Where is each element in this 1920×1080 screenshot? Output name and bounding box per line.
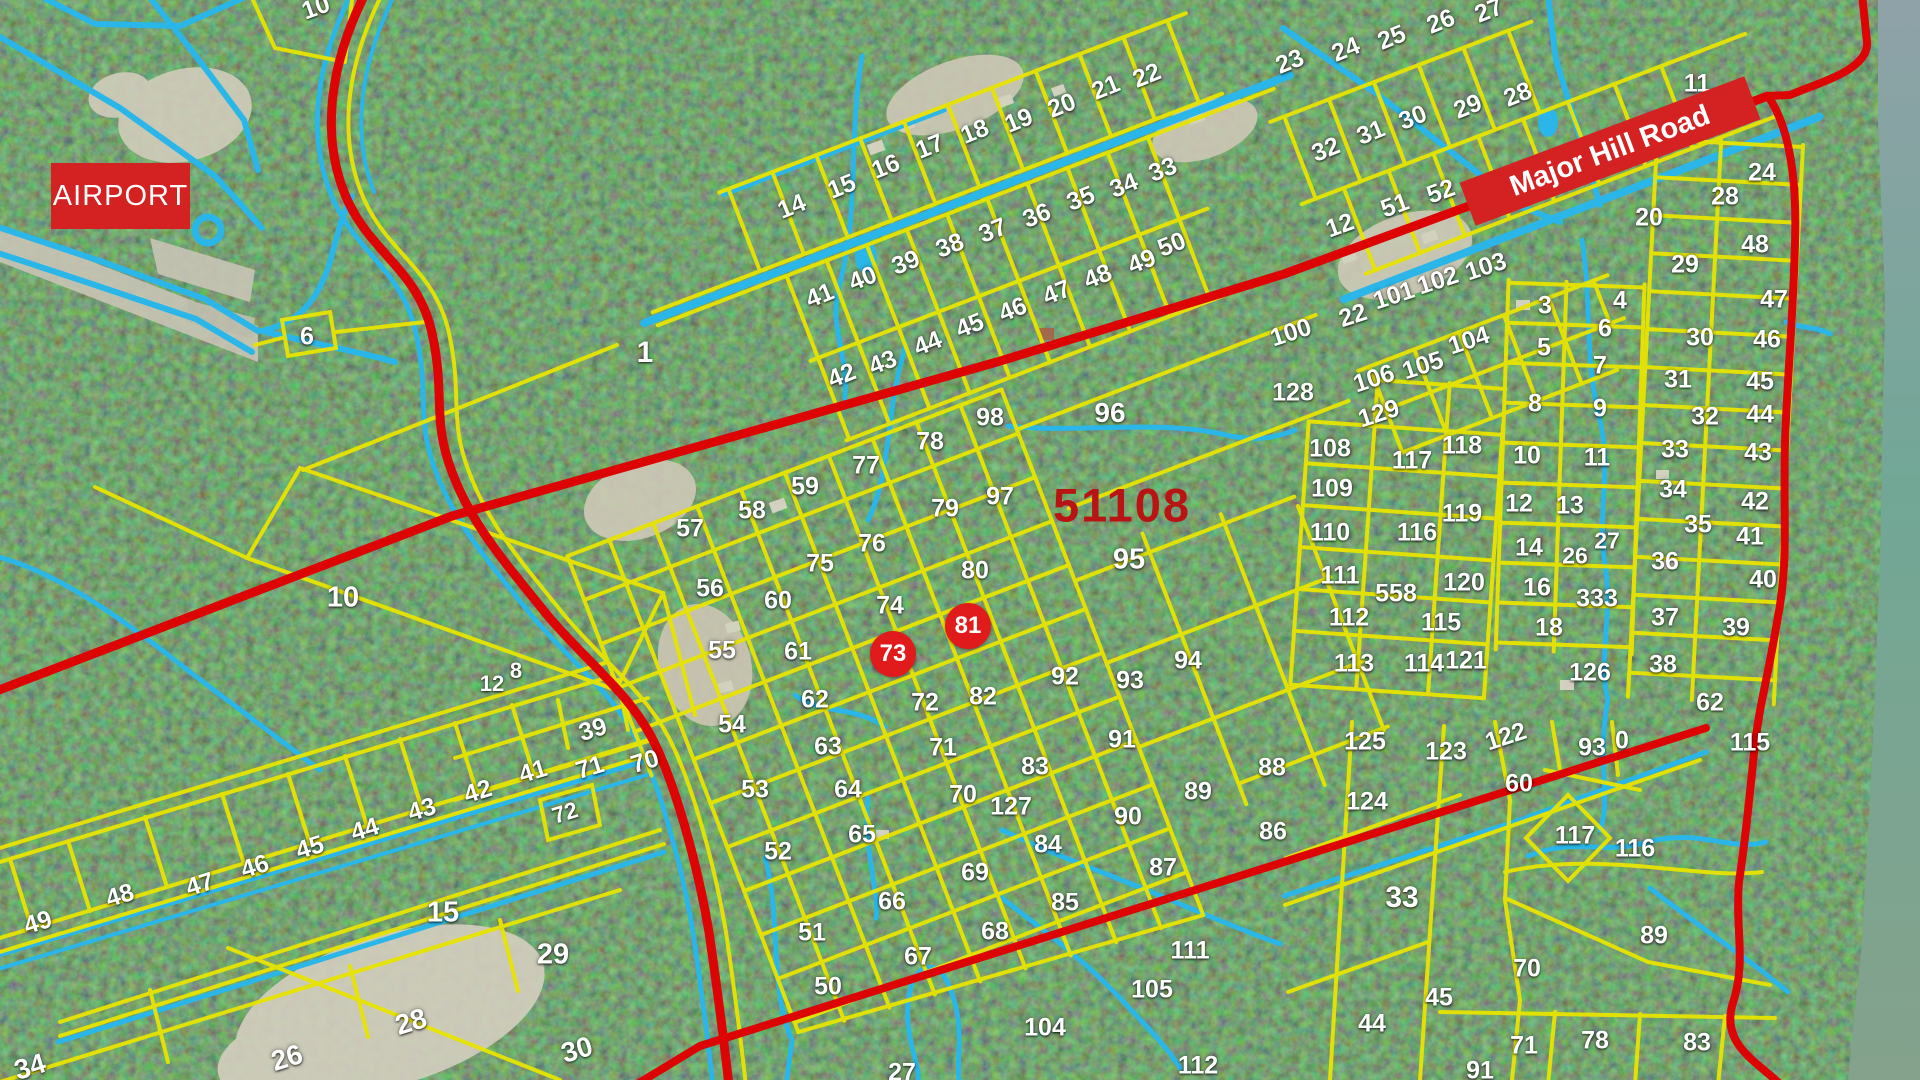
parcel-marker[interactable]: 73	[870, 631, 916, 677]
airport-banner: AIRPORT	[51, 163, 190, 229]
map-canvas[interactable]: 1061101281415161718192021222324252627333…	[0, 0, 1920, 1080]
airport-banner-label: AIRPORT	[53, 180, 188, 213]
region-code-label: 51108	[1053, 478, 1191, 533]
parcel-marker[interactable]: 81	[945, 603, 991, 649]
